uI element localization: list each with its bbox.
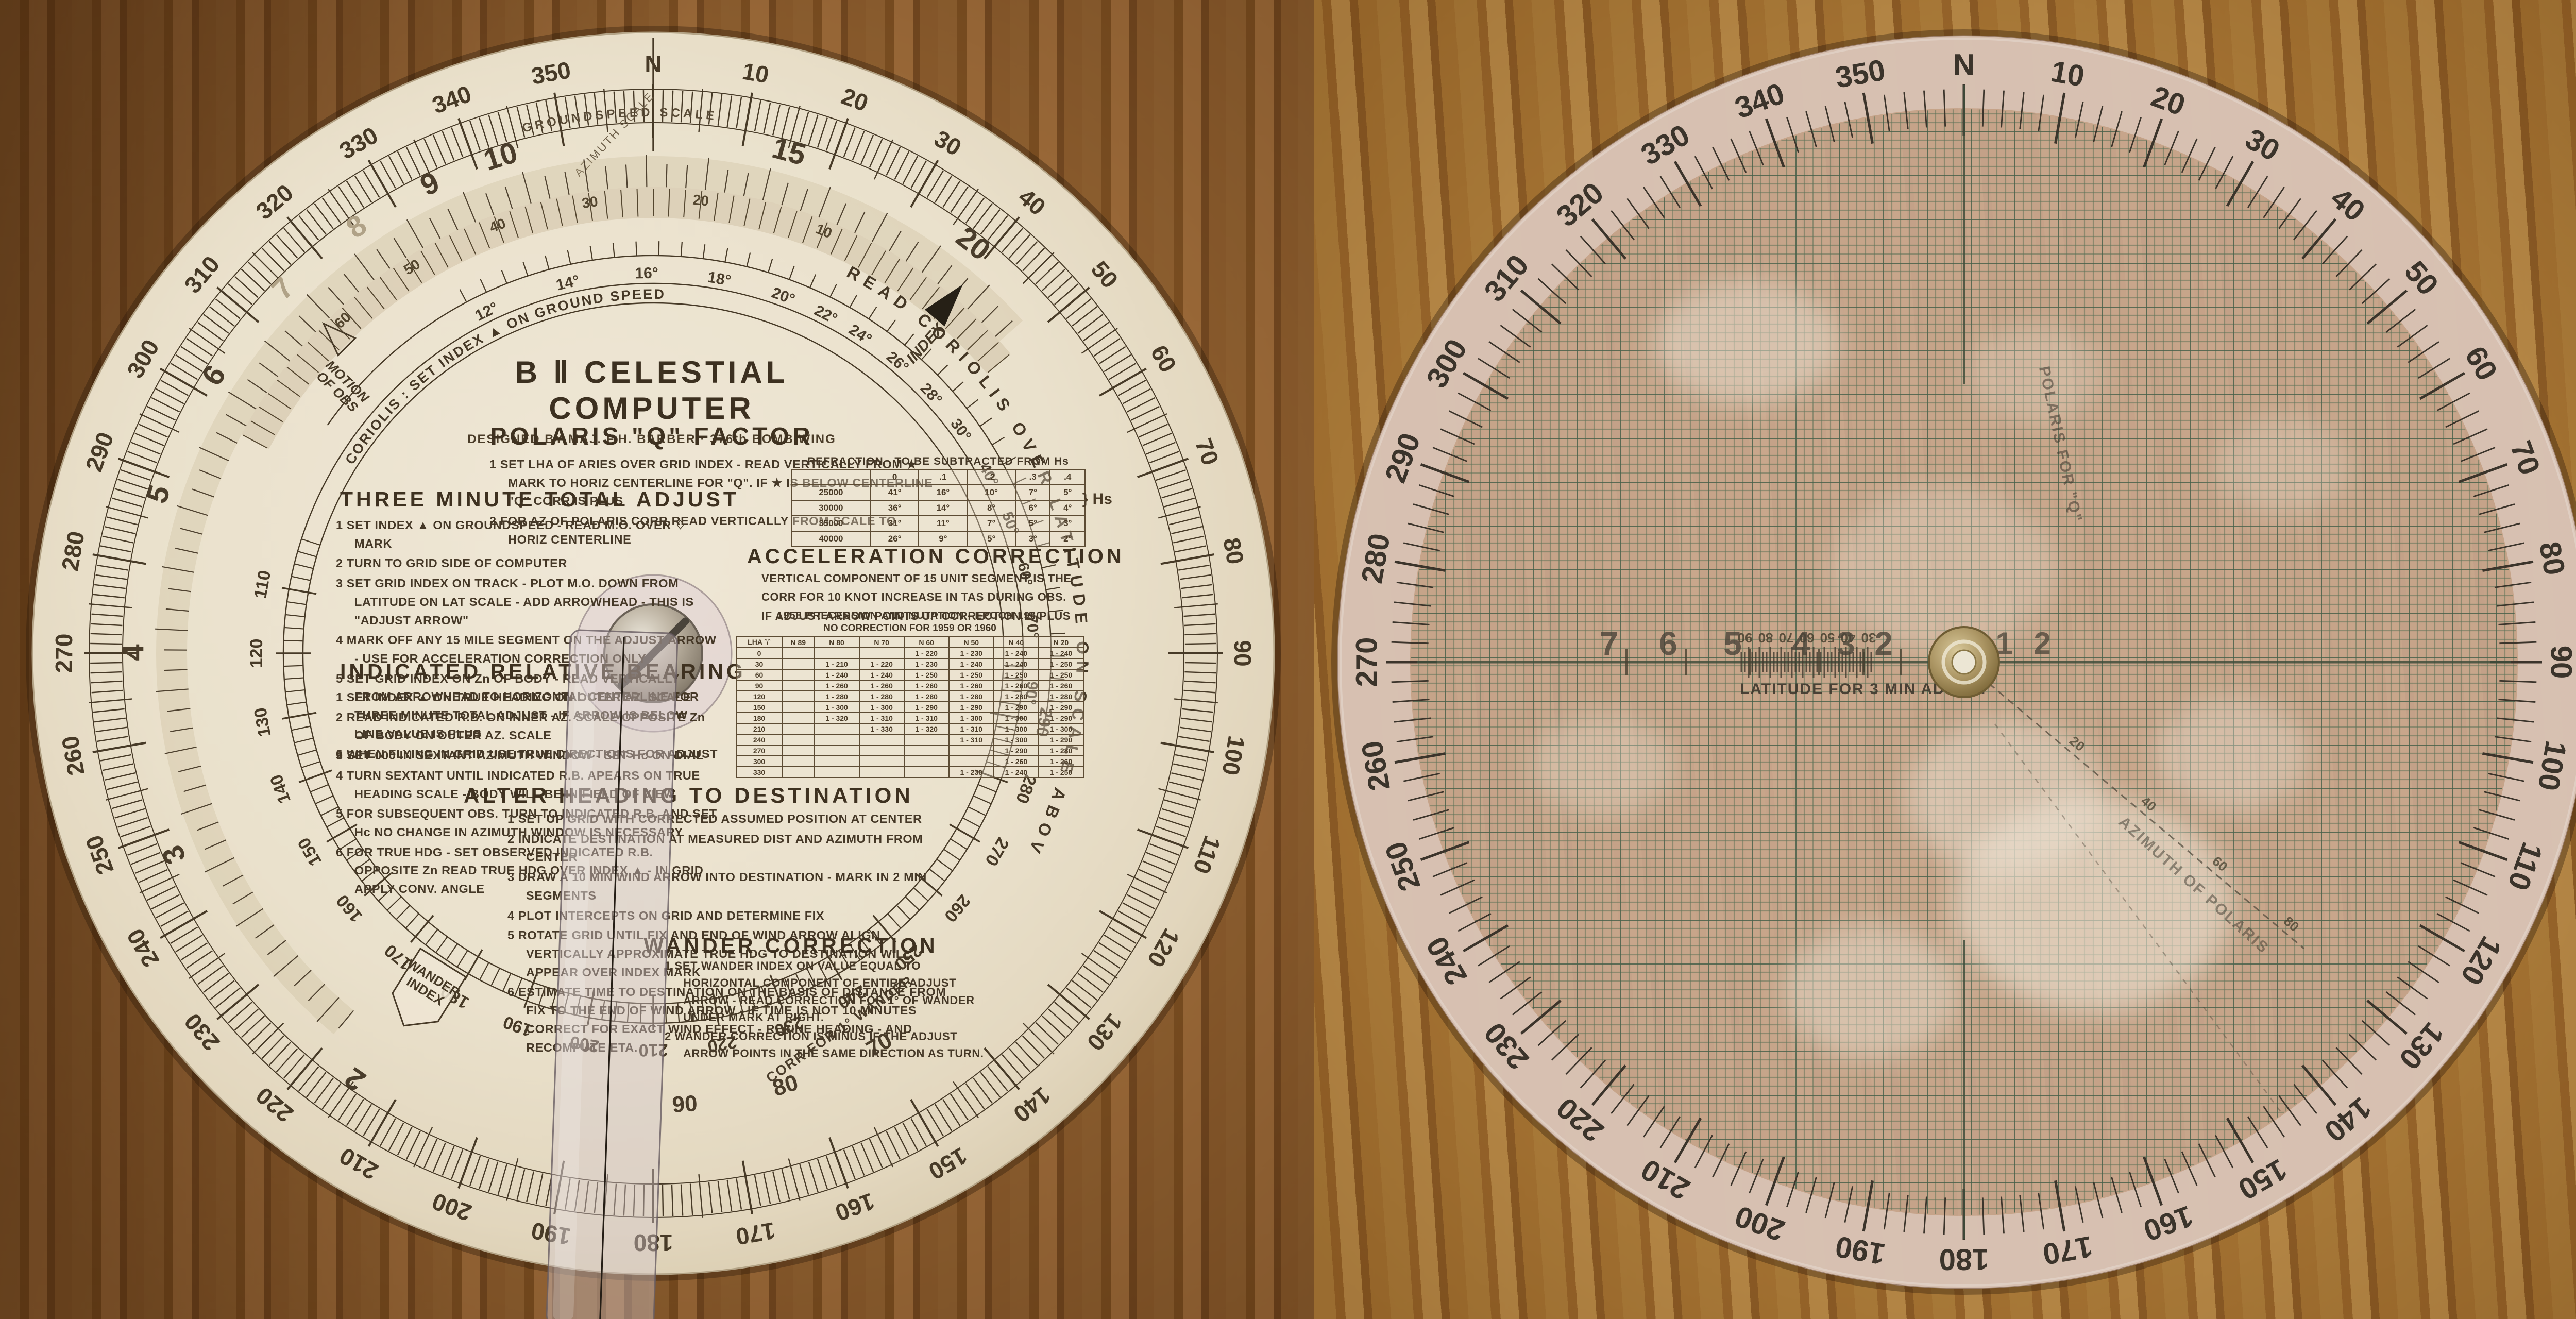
photo-right-grid-face: N102030405060708090100110120130140150160… bbox=[1314, 0, 2576, 1319]
latitude-cluster-label: 70 bbox=[1779, 630, 1794, 646]
worn-blotch bbox=[1655, 281, 1840, 404]
rim-degree-label: 10 bbox=[2048, 55, 2087, 93]
horizontal-scale-number: 2 bbox=[1874, 625, 1893, 662]
grommet-hole bbox=[1952, 650, 1976, 674]
worn-blotch bbox=[1830, 487, 2057, 652]
rim-degree-label: N bbox=[1953, 48, 1975, 81]
worn-blotch bbox=[2155, 698, 2309, 811]
horizontal-scale-number: 5 bbox=[1723, 625, 1742, 662]
rim-degree-label: 90 bbox=[2545, 646, 2576, 679]
worn-blotch bbox=[1531, 714, 1675, 817]
horizontal-scale-number: 4 bbox=[1792, 625, 1810, 662]
worn-blotch bbox=[1784, 925, 1959, 1059]
horizontal-scale-number: 3 bbox=[1837, 625, 1855, 662]
cursor-strip-group[interactable] bbox=[546, 630, 677, 1319]
photo-of-celestial-computer: { "left_disc": { "title": "B Ⅱ CELESTIAL… bbox=[0, 0, 2576, 1319]
rim-degree-label: 270 bbox=[1350, 637, 1383, 687]
worn-blotch bbox=[2216, 417, 2350, 515]
transparent-cursor-strip-layer bbox=[0, 0, 1314, 1319]
latitude-cluster-label: 30 bbox=[1861, 630, 1876, 646]
horizontal-scale-number: 2 bbox=[2033, 626, 2050, 661]
photo-left-front-face: N102030405060708090100110120130140150160… bbox=[0, 0, 1314, 1319]
rim-degree-label: 180 bbox=[1939, 1243, 1989, 1276]
latitude-cluster-label: 80 bbox=[1758, 630, 1773, 646]
worn-blotch bbox=[1969, 325, 2103, 422]
latitude-cluster-label: 50 bbox=[1820, 630, 1835, 646]
horizontal-scale-number: 6 bbox=[1659, 625, 1677, 662]
rim-degree-label: 80 bbox=[2533, 539, 2571, 578]
horizontal-scale-number: 7 bbox=[1600, 625, 1618, 662]
grid-disc-dial[interactable]: N102030405060708090100110120130140150160… bbox=[1314, 0, 2576, 1319]
